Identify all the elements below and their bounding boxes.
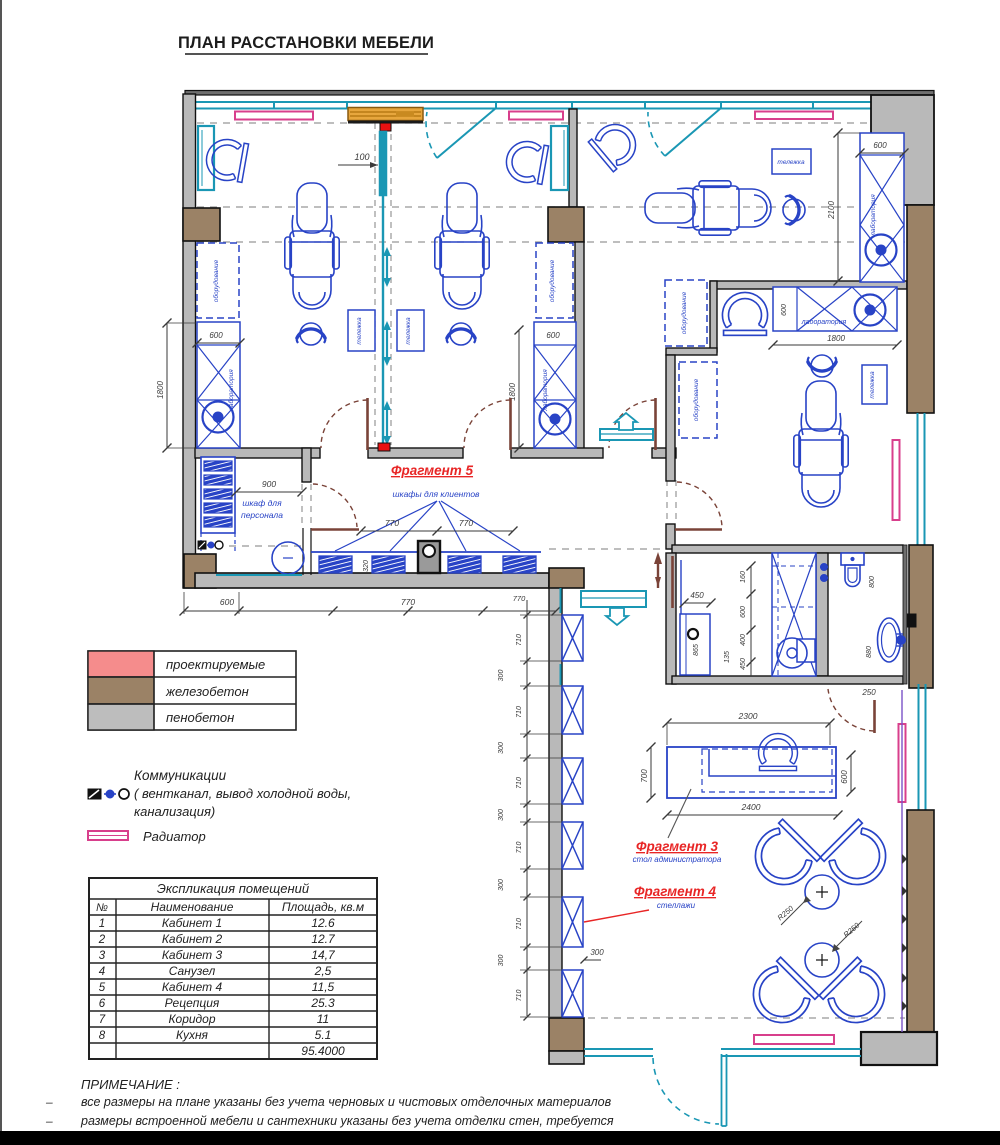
svg-text:710: 710 [516, 842, 523, 854]
svg-text:2300: 2300 [738, 711, 758, 721]
svg-text:1800: 1800 [156, 381, 165, 399]
svg-text:2400: 2400 [741, 802, 761, 812]
svg-text:600: 600 [781, 304, 788, 316]
svg-text:700: 700 [640, 769, 649, 783]
svg-text:лаборатория: лаборатория [801, 318, 847, 326]
svg-text:Кабинет 1: Кабинет 1 [162, 916, 222, 930]
svg-text:Кабинет 4: Кабинет 4 [162, 980, 223, 994]
svg-text:600: 600 [740, 606, 747, 618]
svg-text:2: 2 [98, 934, 106, 946]
svg-text:тележка: тележка [356, 317, 363, 345]
svg-text:300: 300 [498, 955, 505, 967]
svg-text:–: – [45, 1114, 53, 1128]
svg-text:100: 100 [354, 152, 369, 162]
svg-text:Фрагмент 3: Фрагмент 3 [636, 839, 719, 854]
svg-text:канализация): канализация) [134, 804, 215, 819]
svg-text:проектируемые: проектируемые [166, 657, 265, 672]
svg-text:Радиатор: Радиатор [143, 829, 206, 844]
svg-text:лаборатория: лаборатория [869, 194, 877, 237]
svg-text:11: 11 [317, 1012, 329, 1026]
svg-text:2,5: 2,5 [314, 964, 332, 978]
svg-text:ПРИМЕЧАНИЕ :: ПРИМЕЧАНИЕ : [81, 1077, 180, 1092]
svg-text:710: 710 [516, 777, 523, 789]
svg-text:770: 770 [385, 518, 399, 528]
svg-text:1800: 1800 [827, 334, 845, 343]
svg-text:710: 710 [516, 918, 523, 930]
svg-text:тележка: тележка [869, 371, 876, 399]
svg-text:Площадь, кв.м: Площадь, кв.м [282, 900, 364, 914]
svg-text:450: 450 [690, 591, 704, 600]
svg-text:300: 300 [498, 742, 505, 754]
svg-text:лаборатория: лаборатория [541, 369, 549, 412]
svg-text:персонала: персонала [241, 510, 283, 520]
svg-text:600: 600 [220, 597, 234, 607]
svg-text:300: 300 [498, 809, 505, 821]
svg-text:железобетон: железобетон [165, 684, 249, 699]
svg-text:865: 865 [693, 644, 700, 656]
svg-text:Наименование: Наименование [151, 900, 234, 914]
svg-text:Рецепция: Рецепция [165, 996, 220, 1010]
svg-text:ПЛАН РАССТАНОВКИ МЕБЕЛИ: ПЛАН РАССТАНОВКИ МЕБЕЛИ [178, 34, 434, 52]
svg-text:770: 770 [459, 518, 473, 528]
svg-text:160: 160 [740, 571, 747, 583]
svg-text:3: 3 [99, 950, 106, 962]
svg-text:–: – [45, 1095, 53, 1109]
svg-text:оборудование: оборудование [212, 259, 220, 302]
svg-text:оборудование: оборудование [548, 259, 556, 302]
svg-text:оборудование: оборудование [692, 378, 700, 421]
svg-text:600: 600 [840, 770, 849, 784]
svg-text:880: 880 [866, 646, 873, 658]
svg-text:лаборатория: лаборатория [227, 369, 235, 412]
svg-text:135: 135 [724, 651, 731, 663]
svg-text:шкаф для: шкаф для [242, 498, 282, 508]
svg-text:тележка: тележка [405, 317, 412, 345]
svg-text:25.3: 25.3 [310, 996, 335, 1010]
svg-text:900: 900 [262, 479, 276, 489]
svg-text:6: 6 [99, 998, 106, 1010]
svg-text:№: № [96, 902, 108, 914]
svg-text:600: 600 [546, 331, 560, 340]
svg-text:450: 450 [740, 658, 747, 670]
svg-text:300: 300 [498, 879, 505, 891]
svg-text:5.1: 5.1 [315, 1028, 332, 1042]
svg-text:5: 5 [99, 982, 106, 994]
svg-text:11,5: 11,5 [312, 980, 335, 994]
svg-text:600: 600 [209, 331, 223, 340]
svg-text:300: 300 [498, 670, 505, 682]
svg-text:12.6: 12.6 [311, 916, 335, 930]
svg-text:пенобетон: пенобетон [166, 710, 234, 725]
svg-text:2100: 2100 [827, 201, 836, 220]
svg-text:95.4000: 95.4000 [301, 1044, 345, 1058]
svg-text:Кабинет 3: Кабинет 3 [162, 948, 223, 962]
svg-text:14,7: 14,7 [311, 948, 336, 962]
svg-text:Санузел: Санузел [169, 964, 216, 978]
svg-text:8: 8 [99, 1030, 106, 1042]
svg-text:320: 320 [363, 560, 370, 572]
svg-text:Фрагмент 4: Фрагмент 4 [634, 884, 717, 899]
svg-text:800: 800 [869, 576, 876, 588]
svg-text:710: 710 [516, 706, 523, 718]
svg-text:Коммуникации: Коммуникации [134, 768, 227, 783]
svg-text:300: 300 [590, 948, 604, 957]
svg-text:размеры встроенной мебели и са: размеры встроенной мебели и сантехники у… [80, 1114, 614, 1128]
svg-text:Кухня: Кухня [176, 1028, 209, 1042]
svg-text:4: 4 [99, 966, 105, 978]
svg-text:оборудование: оборудование [680, 291, 688, 334]
svg-text:все размеры на плане указаны б: все размеры на плане указаны без учета ч… [81, 1095, 612, 1109]
svg-text:250: 250 [861, 688, 876, 697]
svg-text:710: 710 [516, 990, 523, 1002]
svg-text:7: 7 [99, 1014, 106, 1026]
svg-text:стеллажи: стеллажи [657, 901, 696, 910]
svg-text:770: 770 [401, 597, 415, 607]
svg-text:1: 1 [99, 918, 105, 930]
svg-text:600: 600 [873, 141, 887, 150]
svg-text:тележка: тележка [777, 159, 805, 166]
svg-text:710: 710 [516, 634, 523, 646]
svg-text:стол администратора: стол администратора [633, 855, 722, 864]
svg-text:Коридор: Коридор [168, 1012, 215, 1026]
svg-text:Кабинет 2: Кабинет 2 [162, 932, 223, 946]
svg-text:шкафы для клиентов: шкафы для клиентов [393, 489, 481, 499]
svg-text:400: 400 [740, 634, 747, 646]
svg-text:( вентканал, вывод холодной во: ( вентканал, вывод холодной воды, [134, 786, 351, 801]
svg-text:12.7: 12.7 [311, 932, 336, 946]
svg-text:Фрагмент 5: Фрагмент 5 [391, 463, 474, 478]
svg-text:770: 770 [513, 594, 526, 603]
svg-text:Экспликация помещений: Экспликация помещений [157, 881, 309, 896]
